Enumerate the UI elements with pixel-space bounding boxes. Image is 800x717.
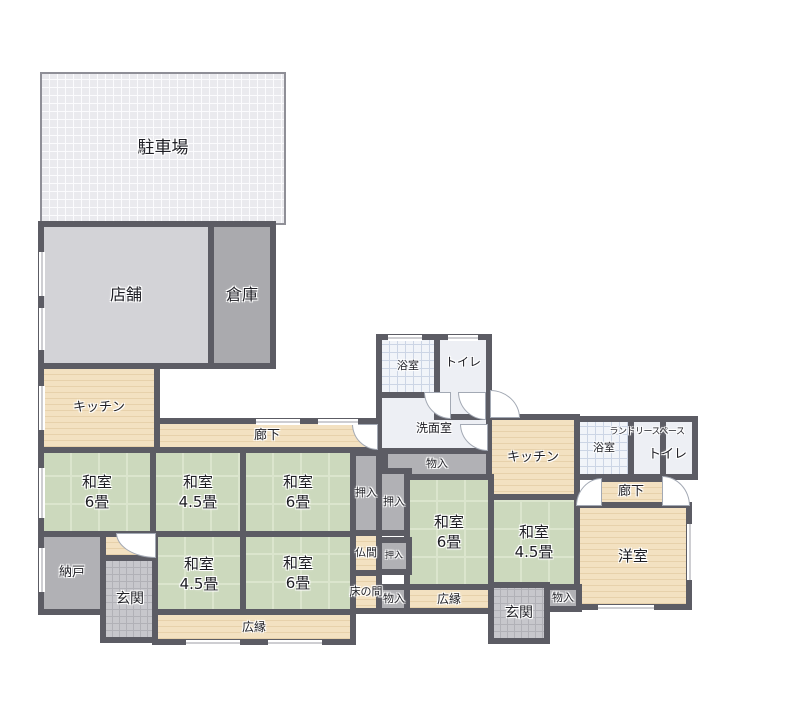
room-label: 和室 [283,553,313,573]
room-label: 和室 [283,472,313,492]
room-label: 洗面室 [416,420,452,436]
room-label: トイレ [445,354,481,370]
room-label: 押入 [385,550,403,562]
window-mark [318,419,358,425]
room-label-laundry: ランドリースペース [596,426,698,438]
window-mark [256,419,300,425]
room-label: 浴室 [397,359,419,374]
room-genkan-right: 玄関 [488,582,550,644]
window-mark [687,524,693,580]
window-mark [39,548,45,592]
room-label: 床の間 [350,585,383,600]
room-size-label: 4.5畳 [180,574,219,594]
room-washitsu-6-b: 和室 6畳 [240,447,356,537]
room-bath-top: 浴室 [376,334,440,398]
room-size-label: 6畳 [286,573,311,593]
room-label: 倉庫 [226,284,258,306]
room-label: 納戸 [59,564,85,582]
room-washitsu-45-b: 和室 4.5畳 [488,494,580,590]
room-label: 広縁 [437,591,461,607]
room-label: 物入 [383,592,405,607]
window-mark [186,640,240,646]
room-label: 廊下 [618,483,644,501]
room-label: 駐車場 [138,137,189,160]
room-washitsu-45-c: 和室 4.5畳 [152,531,246,617]
room-youshitsu: 洋室 [574,502,692,610]
window-mark [448,335,478,341]
window-mark [39,386,45,430]
room-size-label: 6畳 [286,492,311,512]
room-shop: 店舗 [38,221,214,369]
room-washitsu-6-c: 和室 6畳 [404,474,494,590]
room-label: 洋室 [618,546,648,566]
room-label: 和室 [519,522,549,542]
room-size-label: 6畳 [85,492,110,512]
room-washitsu-6-a: 和室 6畳 [38,447,156,537]
room-label: 和室 [183,472,213,492]
room-label: 物入 [552,591,574,606]
room-label: 押入 [383,495,405,510]
room-nando: 納戸 [38,531,106,615]
room-label: 仏間 [355,546,377,561]
room-label: 店舗 [110,284,142,306]
room-label: 廊下 [254,427,280,445]
window-mark [388,335,422,341]
door-arc [662,476,690,506]
room-label: キッチン [507,449,559,467]
room-hiroen-bottom: 広縁 [152,609,356,645]
room-label: 押入 [355,486,377,501]
room-genkan-left: 玄関 [100,555,160,643]
window-mark [268,640,322,646]
room-hiroen-right: 広縁 [404,584,494,614]
room-size-label: 4.5畳 [179,492,218,512]
door-arc [490,390,520,418]
room-size-label: 6畳 [437,532,462,552]
room-label: 和室 [82,472,112,492]
window-mark [598,605,654,611]
room-label: 和室 [184,554,214,574]
room-size-label: 4.5畳 [515,542,554,562]
window-mark [39,468,45,518]
room-label: 物入 [426,457,448,472]
room-label-toilet-right: トイレ [648,446,687,464]
room-label: 玄関 [505,604,533,623]
room-washitsu-6-d: 和室 6畳 [240,531,356,615]
room-kitchen-right: キッチン [486,414,580,502]
room-monoiri-right: 物入 [544,584,582,612]
room-label: 広縁 [242,619,266,635]
room-label: 和室 [434,512,464,532]
room-label: 玄関 [116,590,144,609]
room-parking: 駐車場 [40,72,286,225]
window-mark [39,252,45,296]
room-label: キッチン [73,399,125,417]
floor-plan: 駐車場 店舗 倉庫 キッチン 廊下 洗面室 浴室 トイレ キッチン 浴室 廊下 … [0,0,800,717]
room-warehouse: 倉庫 [208,221,276,369]
window-mark [39,308,45,350]
room-label: 浴室 [593,441,615,456]
room-washitsu-45-a: 和室 4.5畳 [150,447,246,537]
room-kitchen-left: キッチン [38,363,160,453]
